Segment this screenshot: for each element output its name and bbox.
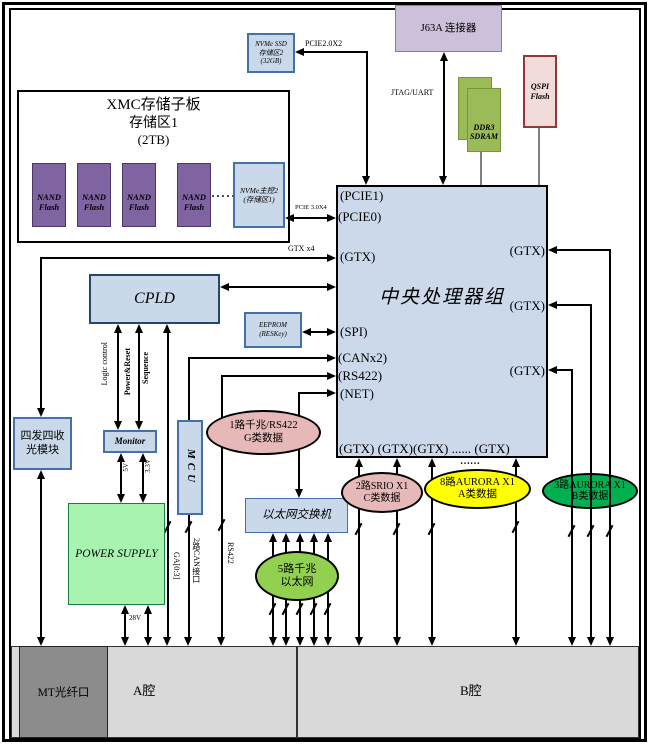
nvme-ssd-box: NVMe SSD 存储区2 (32GB) [247, 33, 295, 73]
can-bay-label: 2路CAN接口 [191, 538, 200, 583]
monitor-label: Monitor [115, 436, 146, 447]
power-reset-label1: Power&Reset [124, 348, 133, 395]
srio-line1: 2路SRIO X1 [356, 481, 409, 493]
gtx-right-line-overlay [590, 475, 592, 508]
can-line [189, 357, 327, 359]
nand-label: Flash [39, 202, 59, 212]
arrowhead [548, 301, 557, 309]
cpu-block [336, 185, 548, 458]
arrowhead [135, 421, 143, 430]
can-bay-line [188, 515, 190, 637]
arrowhead [184, 637, 192, 646]
arrowhead [327, 283, 336, 291]
optical-label2: 光模块 [26, 444, 59, 458]
xmc-capacity: (2TB) [138, 132, 170, 148]
arrowhead [163, 637, 171, 646]
mt-fiber-label: MT光纤口 [38, 684, 90, 700]
gtx4-line [40, 257, 42, 408]
cpu-ports-bottom: (GTX) (GTX)(GTX) ...... (GTX) [339, 441, 510, 457]
arrowhead [428, 637, 436, 646]
pcie20-line [304, 51, 368, 53]
arrowhead [327, 389, 336, 397]
power-supply-box: POWER SUPPLY [68, 503, 165, 605]
cpu-port-pcie0: (PCIE0) [338, 209, 381, 225]
nvme-master-line2: (存储区1) [243, 195, 274, 204]
block-diagram: NVMe SSD 存储区2 (32GB) PCIE2.0X2 XMC存储子板 存… [0, 0, 651, 746]
arrowhead [327, 372, 336, 380]
aurora-a-line2: A类数据 [458, 489, 497, 501]
qspi-label2: Flash [530, 92, 549, 102]
arrowhead [324, 533, 332, 542]
arrowhead [355, 458, 363, 467]
rail-28v-line [124, 614, 126, 637]
mcu-label: MCU [183, 449, 197, 486]
arrowhead [217, 637, 225, 646]
arrowhead [302, 328, 311, 336]
nvme-ssd-line3: (32GB) [261, 57, 282, 66]
gtx4-label: GTX x4 [288, 245, 314, 254]
arrowhead [121, 637, 129, 646]
ddr3-line [480, 152, 482, 185]
nand-flash-chip: NAND Flash [77, 163, 111, 227]
power-reset-label2: Sequence [142, 352, 151, 384]
spi-line [311, 331, 327, 333]
can-line [188, 357, 190, 420]
arrowhead [512, 458, 520, 467]
arrowhead [295, 489, 303, 498]
aurora-ellipsis: …… [460, 456, 480, 467]
arrowhead [393, 458, 401, 467]
nvme-master-box: NVMe主控2 (存储区1) [233, 162, 285, 228]
g-data-ellipse: 1路千兆/RS422 G类数据 [206, 410, 321, 455]
srio-ellipse: 2路SRIO X1 C类数据 [341, 472, 423, 513]
arrowhead [114, 324, 122, 333]
nand-label: NAND [182, 192, 206, 202]
arrowhead [37, 470, 45, 479]
qspi-label1: QSPI [531, 82, 549, 92]
bay-a-label: A腔 [133, 684, 155, 698]
arrowhead [285, 214, 294, 222]
eth-switch-label: 以太网交换机 [262, 508, 331, 522]
aurora-a-ellipse: 8路AURORA X1 A类数据 [424, 469, 531, 509]
eth-switch-box: 以太网交换机 [245, 498, 348, 533]
arrowhead [606, 637, 614, 646]
srio-line2: C类数据 [364, 493, 401, 505]
logic-control-line [117, 333, 119, 421]
gtx4-line [42, 257, 327, 259]
nand-flash-chip: NAND Flash [122, 163, 156, 227]
ddr3-label1: DDR3 [474, 123, 495, 132]
jtag-label: JTAG/UART [391, 89, 433, 98]
arrowhead [327, 328, 336, 336]
arrowhead [568, 637, 576, 646]
arrowhead [295, 48, 304, 56]
bay-divider [296, 647, 298, 737]
arrowhead [428, 458, 436, 467]
pcie30-label: PCIE 3.0X4 [295, 204, 327, 211]
cpu-port-gtx-left: (GTX) [340, 249, 375, 265]
rs422-line [221, 375, 223, 637]
power-supply-label: POWER SUPPLY [75, 547, 158, 561]
ddr3-chip: DDR3 SDRAM [467, 88, 501, 152]
arrowhead [324, 637, 332, 646]
cpu-port-net: (NET) [340, 386, 374, 402]
arrowhead [327, 254, 336, 262]
gtx-right-line [590, 304, 592, 637]
nand-label: NAND [37, 192, 61, 202]
ddr3-label2: SDRAM [470, 132, 498, 141]
j63a-connector-box: J63A 连接器 [395, 5, 502, 52]
arrowhead [440, 52, 448, 61]
monitor-box: Monitor [103, 430, 157, 453]
nvme-ssd-line2: 存储区2 [259, 49, 284, 58]
cpu-port-spi: (SPI) [340, 324, 367, 340]
net-line [300, 392, 327, 394]
arrowhead [587, 637, 595, 646]
arrowhead [139, 494, 147, 503]
gtx-right-line [557, 249, 611, 251]
arrowhead [269, 533, 277, 542]
cpu-port-rs422: (RS422) [338, 368, 382, 384]
gtx-right-line [609, 249, 611, 637]
power-reset-line [138, 333, 140, 421]
arrowhead [362, 176, 370, 185]
cpu-port-gtx-r3: (GTX) [505, 363, 545, 379]
g-data-line2: G类数据 [244, 433, 283, 445]
arrowhead [144, 605, 152, 614]
nvme-master-line1: NVMe主控2 [240, 186, 278, 195]
arrowhead [548, 246, 557, 254]
arrowhead [135, 324, 143, 333]
nand-flash-chip: NAND Flash [177, 163, 211, 227]
cpld-label: CPLD [134, 289, 175, 309]
eeprom-label2: (RESKey) [259, 330, 287, 339]
arrowhead [117, 453, 125, 462]
ga-line [167, 333, 169, 637]
qspi-line [538, 128, 540, 185]
gtx-right-line [557, 304, 592, 306]
j63a-label: J63A 连接器 [421, 22, 477, 35]
logic-control-label: Logic control [101, 342, 110, 385]
cpu-port-pcie1: (PCIE1) [340, 188, 383, 204]
arrowhead [282, 637, 290, 646]
arrowhead [269, 637, 277, 646]
arrowhead [310, 637, 318, 646]
cpld-cpu-line [229, 286, 327, 288]
eth5-ellipse: 5路千兆 以太网 [255, 551, 339, 601]
cpu-port-can: (CANx2) [338, 350, 387, 366]
arrowhead [114, 421, 122, 430]
arrowhead [512, 637, 520, 646]
rail-33v-label: 3.3V [145, 459, 153, 473]
arrowhead [327, 214, 336, 222]
arrowhead [548, 366, 557, 374]
g-data-line1: 1路千兆/RS422 [229, 420, 297, 432]
nand-flash-chip: NAND Flash [32, 163, 66, 227]
arrowhead [355, 637, 363, 646]
cpu-port-gtx-r2: (GTX) [505, 298, 545, 314]
qspi-flash-box: QSPI Flash [523, 55, 557, 128]
pcie20-label: PCIE2.0X2 [305, 40, 342, 49]
pcie30-line [294, 217, 327, 219]
arrowhead [310, 533, 318, 542]
rail-28v-label: 28V [129, 615, 141, 623]
arrowhead [117, 494, 125, 503]
rs422-line [222, 375, 327, 377]
optical-mt-line [40, 479, 42, 637]
xmc-subtitle: 存储区1 [129, 115, 178, 133]
nand-label: Flash [84, 202, 104, 212]
rail-5v-label: 5V [123, 463, 131, 472]
arrowhead [282, 533, 290, 542]
arrowhead [220, 283, 229, 291]
ga-label: GA[0:3] [171, 552, 180, 579]
mcu-box: MCU [177, 420, 203, 515]
arrowhead [296, 637, 304, 646]
gtx-right-line-overlay [609, 475, 611, 508]
nand-label: Flash [129, 202, 149, 212]
arrowhead [296, 533, 304, 542]
nvme-ssd-line1: NVMe SSD [255, 40, 287, 49]
optical-label1: 四发四收 [21, 430, 65, 444]
rail-28v-line [147, 614, 149, 637]
optical-module-box: 四发四收 光模块 [13, 417, 72, 470]
eth5-line2: 以太网 [281, 576, 314, 589]
arrowhead [163, 324, 171, 333]
pcie20-line [366, 51, 368, 176]
cpu-port-gtx-r1: (GTX) [505, 243, 545, 259]
gtx-right-line-overlay [571, 475, 573, 508]
xmc-title: XMC存储子板 [106, 96, 200, 115]
eth5-line1: 5路千兆 [278, 563, 317, 576]
eeprom-box: EEPROM (RESKey) [244, 312, 302, 348]
rs422-label: RS422 [225, 542, 234, 564]
mt-fiber-port: MT光纤口 [19, 646, 108, 738]
arrowhead [393, 637, 401, 646]
arrowhead [121, 605, 129, 614]
nand-label: NAND [82, 192, 106, 202]
jtag-line [443, 61, 445, 176]
cpld-box: CPLD [89, 274, 220, 324]
arrowhead [144, 637, 152, 646]
arrowhead [37, 408, 45, 417]
arrowhead [327, 354, 336, 362]
eeprom-label1: EEPROM [259, 321, 287, 330]
arrowhead [37, 637, 45, 646]
aurora-a-line1: 8路AURORA X1 [440, 477, 515, 489]
nand-label: Flash [184, 202, 204, 212]
arrowhead [439, 176, 447, 185]
cpu-title: 中央处理器组 [356, 288, 528, 309]
nand-label: NAND [127, 192, 151, 202]
bay-b-label: B腔 [460, 684, 482, 698]
